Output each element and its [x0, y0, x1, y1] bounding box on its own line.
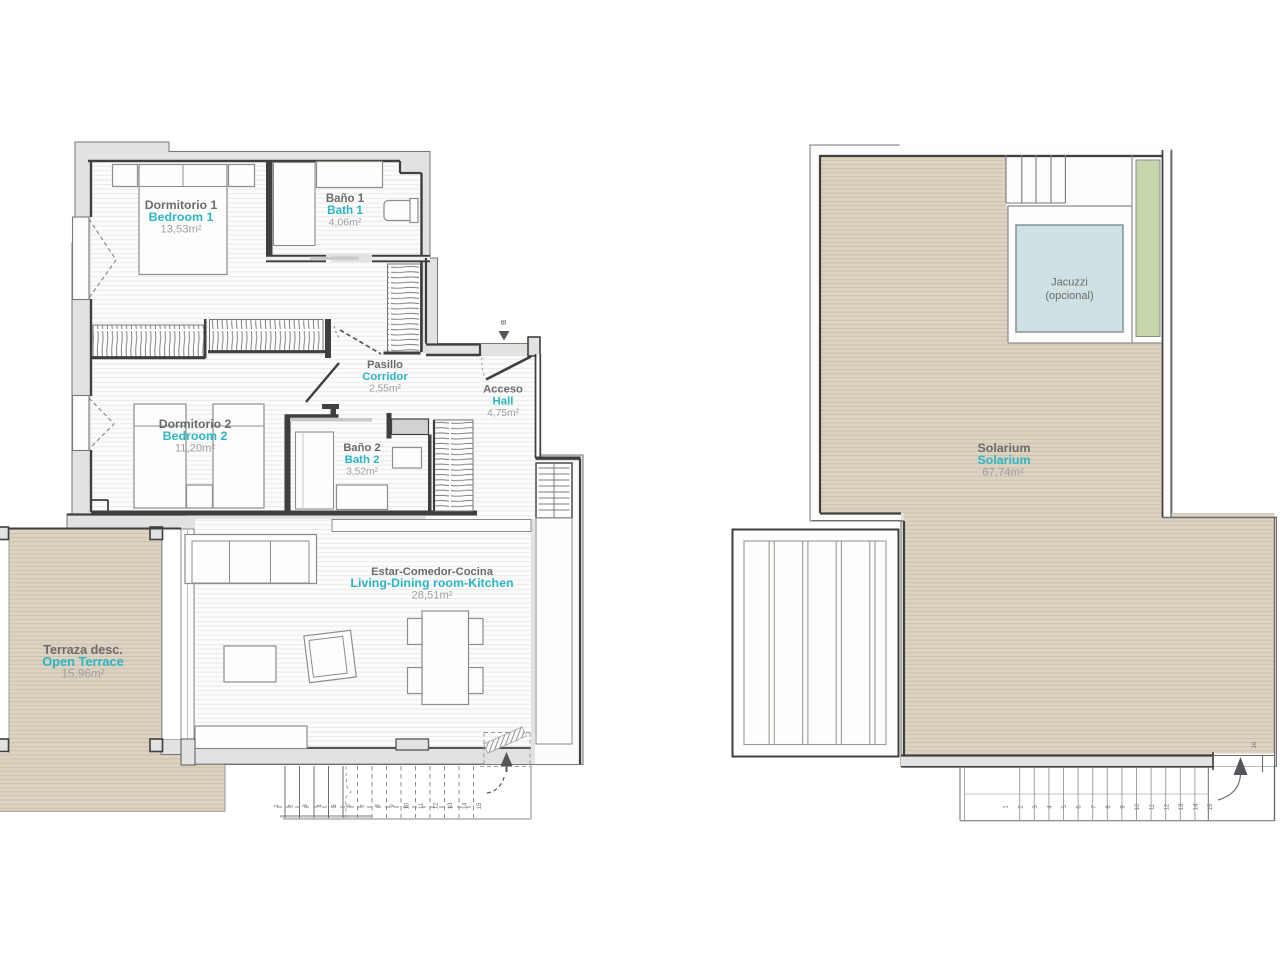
svg-text:10: 10	[404, 802, 410, 809]
svg-text:4,06m²: 4,06m²	[329, 216, 362, 228]
svg-text:15: 15	[1208, 803, 1214, 810]
svg-text:14: 14	[462, 802, 468, 809]
svg-text:11: 11	[1150, 803, 1156, 810]
svg-text:Bedroom 1: Bedroom 1	[149, 210, 214, 224]
svg-text:11: 11	[419, 802, 425, 809]
svg-text:Bedroom 2: Bedroom 2	[163, 429, 228, 443]
svg-text:12: 12	[433, 802, 439, 809]
svg-text:Bath 1: Bath 1	[327, 204, 363, 217]
svg-text:15: 15	[477, 802, 483, 809]
svg-text:B: B	[499, 320, 508, 325]
svg-text:11,20m²: 11,20m²	[175, 442, 215, 454]
svg-text:13: 13	[448, 802, 454, 809]
svg-text:10: 10	[1135, 803, 1141, 810]
svg-text:Bath 2: Bath 2	[345, 454, 380, 466]
svg-text:Jacuzzi: Jacuzzi	[1051, 277, 1088, 289]
svg-text:4,75m²: 4,75m²	[487, 408, 519, 419]
svg-text:Acceso: Acceso	[483, 384, 523, 396]
svg-text:15,96m²: 15,96m²	[61, 666, 104, 680]
svg-text:Baño 2: Baño 2	[343, 442, 380, 454]
svg-text:3,52m²: 3,52m²	[346, 466, 378, 477]
svg-text:Solarium: Solarium	[977, 453, 1030, 467]
svg-text:Hall: Hall	[493, 395, 514, 407]
svg-text:16: 16	[1251, 741, 1258, 748]
svg-text:14: 14	[1194, 803, 1200, 810]
svg-text:(opcional): (opcional)	[1045, 290, 1093, 302]
svg-text:Pasillo: Pasillo	[367, 359, 403, 371]
svg-text:Corridor: Corridor	[362, 371, 408, 383]
svg-text:12: 12	[1164, 803, 1170, 810]
svg-text:2,55m²: 2,55m²	[369, 383, 401, 394]
svg-text:67,74m²: 67,74m²	[982, 466, 1024, 478]
svg-text:28,51m²: 28,51m²	[411, 589, 452, 601]
svg-text:13: 13	[1179, 803, 1185, 810]
svg-text:13,53m²: 13,53m²	[160, 223, 201, 235]
svg-text:Living-Dining room-Kitchen: Living-Dining room-Kitchen	[350, 576, 513, 590]
